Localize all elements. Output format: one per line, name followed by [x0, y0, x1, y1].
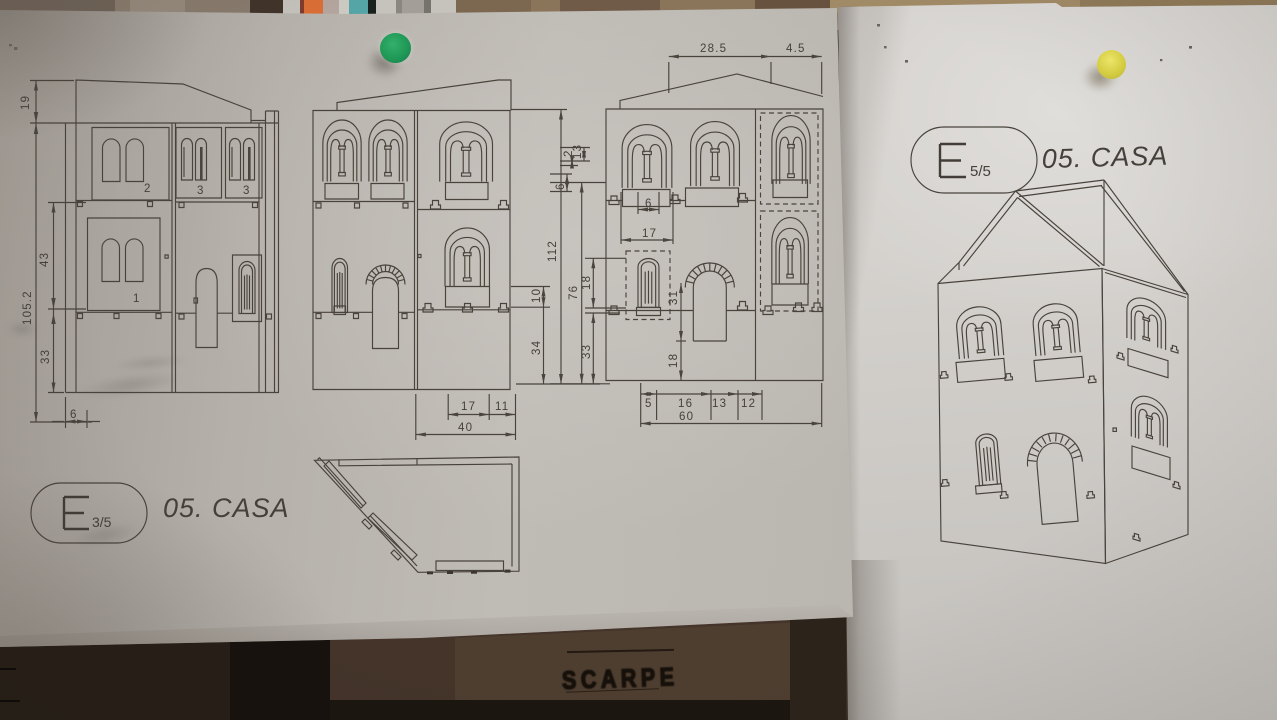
svg-text:16: 16 [678, 398, 693, 410]
svg-text:11: 11 [495, 401, 509, 413]
svg-text:33: 33 [581, 344, 593, 359]
svg-text:5: 5 [645, 398, 653, 410]
svg-text:10: 10 [531, 288, 543, 303]
svg-text:3: 3 [243, 185, 251, 197]
svg-text:17: 17 [642, 228, 657, 240]
svg-text:105.2: 105.2 [22, 290, 34, 325]
svg-text:60: 60 [679, 411, 694, 423]
svg-text:18: 18 [581, 275, 593, 290]
svg-text:2: 2 [144, 183, 152, 195]
svg-text:18: 18 [668, 353, 680, 368]
svg-text:33: 33 [40, 349, 52, 364]
svg-text:1: 1 [133, 293, 141, 305]
svg-text:40: 40 [458, 422, 473, 434]
svg-text:13: 13 [712, 398, 727, 410]
svg-text:34: 34 [531, 340, 543, 355]
svg-text:76: 76 [568, 285, 580, 300]
svg-text:6: 6 [555, 182, 567, 190]
svg-text:05. CASA: 05. CASA [163, 493, 290, 523]
svg-text:31: 31 [668, 290, 680, 305]
svg-text:05. CASA: 05. CASA [1041, 141, 1168, 174]
svg-text:4.5: 4.5 [786, 43, 806, 55]
svg-text:19: 19 [20, 95, 32, 110]
svg-text:3/5: 3/5 [92, 514, 112, 530]
svg-text:2: 2 [563, 149, 575, 157]
svg-text:17: 17 [461, 401, 476, 413]
svg-text:112: 112 [547, 240, 559, 262]
svg-text:5/5: 5/5 [970, 163, 991, 180]
svg-text:6: 6 [70, 409, 78, 421]
svg-text:6: 6 [645, 198, 653, 210]
svg-text:28.5: 28.5 [700, 43, 727, 55]
svg-text:43: 43 [39, 252, 51, 267]
svg-text:3: 3 [197, 185, 205, 197]
svg-text:12: 12 [741, 398, 756, 410]
